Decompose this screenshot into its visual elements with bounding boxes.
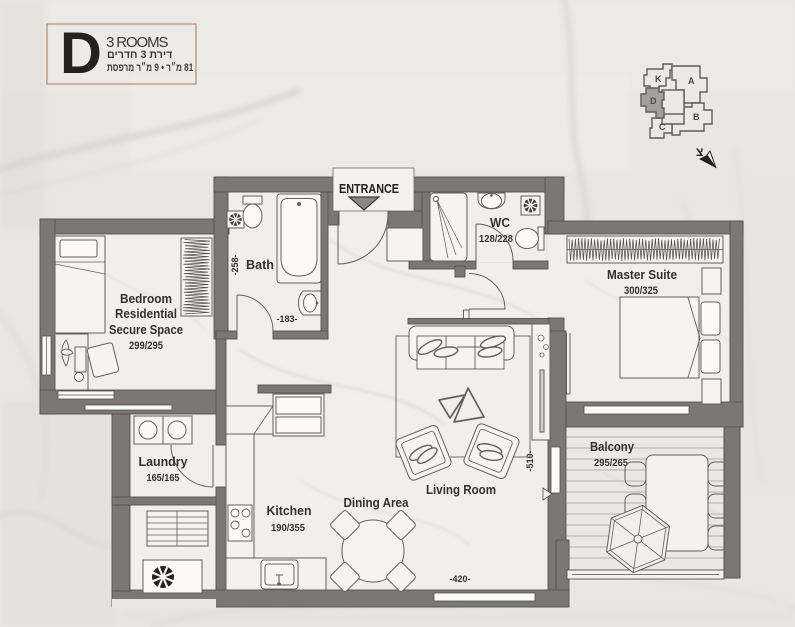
svg-text:C: C <box>659 122 666 132</box>
svg-text:Kitchen: Kitchen <box>267 504 312 518</box>
svg-text:D: D <box>650 96 657 106</box>
svg-text:Laundry: Laundry <box>139 455 188 469</box>
svg-text:A: A <box>688 76 695 86</box>
svg-text:Dining Area: Dining Area <box>344 496 410 510</box>
svg-text:B: B <box>693 112 700 122</box>
svg-text:-420-: -420- <box>449 574 470 584</box>
svg-text:WC: WC <box>490 216 510 230</box>
svg-text:190/355: 190/355 <box>271 522 305 534</box>
svg-text:D: D <box>60 21 101 86</box>
svg-text:Balcony: Balcony <box>590 440 634 454</box>
svg-text:ENTRANCE: ENTRANCE <box>339 182 399 196</box>
svg-text:Bedroom: Bedroom <box>120 292 172 306</box>
svg-text:Residential: Residential <box>115 307 177 321</box>
svg-text:-258-: -258- <box>230 254 240 275</box>
svg-text:Living Room: Living Room <box>426 483 496 497</box>
svg-text:295/265: 295/265 <box>594 457 628 469</box>
svg-text:128/228: 128/228 <box>479 233 513 245</box>
svg-text:165/165: 165/165 <box>147 472 180 484</box>
svg-text:300/325: 300/325 <box>624 285 658 297</box>
svg-text:צ: צ <box>696 145 703 159</box>
svg-text:Master Suite: Master Suite <box>607 267 677 282</box>
svg-text:Bath: Bath <box>246 257 274 272</box>
svg-text:Secure Space: Secure Space <box>109 323 183 337</box>
svg-text:299/295: 299/295 <box>129 340 163 352</box>
svg-text:-183-: -183- <box>276 314 297 324</box>
svg-text:K: K <box>655 74 662 84</box>
